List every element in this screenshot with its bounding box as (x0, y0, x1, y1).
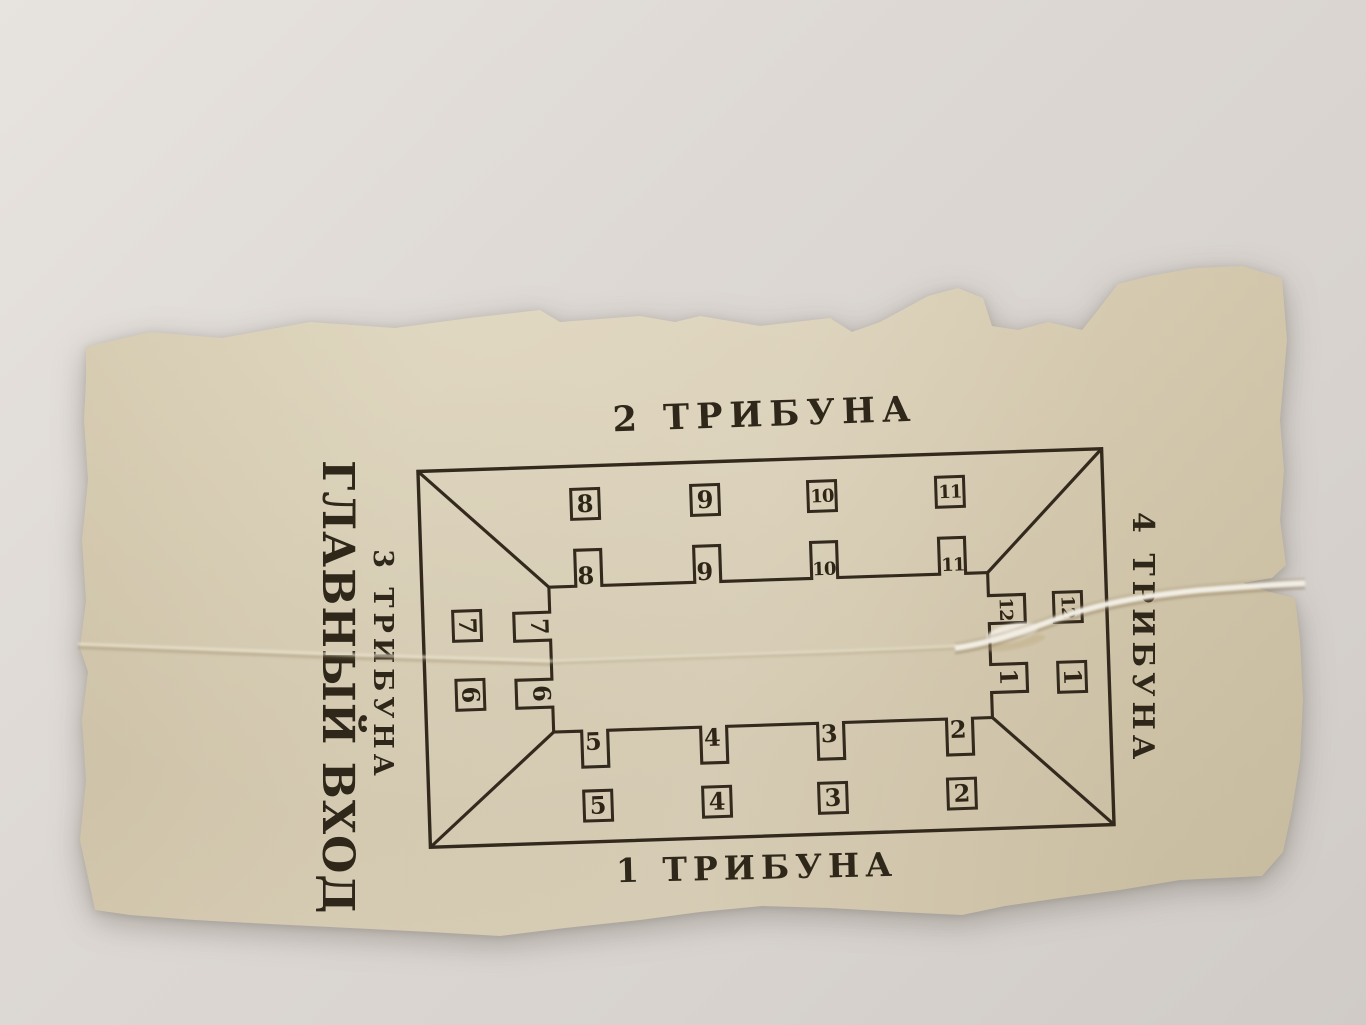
section-box-10-number: 10 (810, 486, 834, 508)
section-box-4-number: 4 (708, 786, 726, 816)
gate-label-2: 2 (949, 714, 967, 744)
section-box-12-number: 12 (1056, 595, 1078, 619)
gate-label-12: 12 (994, 597, 1016, 621)
section-box-6-number: 6 (456, 686, 486, 704)
stand-3-main-entrance-label: 3 ТРИБУНА ГЛАВНЫЙ ВХОД (304, 460, 400, 870)
section-box-7-number: 7 (453, 617, 483, 635)
gate-label-7: 7 (525, 618, 555, 636)
main-entrance-label: ГЛАВНЫЙ ВХОД (310, 460, 364, 870)
section-box-8-number: 8 (576, 489, 594, 519)
section-box-5-number: 5 (589, 790, 607, 820)
gate-label-8: 8 (577, 561, 595, 591)
gate-label-5: 5 (585, 727, 603, 757)
diagonal-top-left (418, 467, 549, 591)
stadium-seating-plan: 8 9 10 11 8 9 10 11 5 4 3 2 5 4 3 2 7 6 … (415, 441, 1118, 856)
section-box-2-number: 2 (953, 778, 971, 808)
section-box-3-number: 3 (824, 783, 842, 813)
outer-boundary (418, 449, 1114, 847)
section-box-11-number: 11 (938, 481, 962, 503)
gate-label-3: 3 (820, 719, 838, 749)
section-box-1-number: 1 (1058, 668, 1088, 686)
photo-background: 2 ТРИБУНА 1 ТРИБУНА 3 ТРИБУНА ГЛАВНЫЙ ВХ… (0, 0, 1366, 1025)
section-box-9-number: 9 (696, 485, 714, 515)
stand-3-label: 3 ТРИБУНА (364, 460, 400, 870)
gate-label-10: 10 (812, 559, 836, 581)
gate-label-6: 6 (527, 685, 557, 703)
gate-label-1: 1 (994, 668, 1024, 686)
gate-label-4: 4 (703, 723, 721, 753)
gate-label-11: 11 (941, 554, 965, 576)
diagonal-bottom-right (992, 714, 1114, 829)
diagonal-bottom-left (427, 732, 558, 847)
stand-4-label: 4 ТРИБУНА (1122, 512, 1162, 752)
diagonal-top-right (984, 449, 1106, 573)
gate-label-9: 9 (696, 557, 714, 587)
